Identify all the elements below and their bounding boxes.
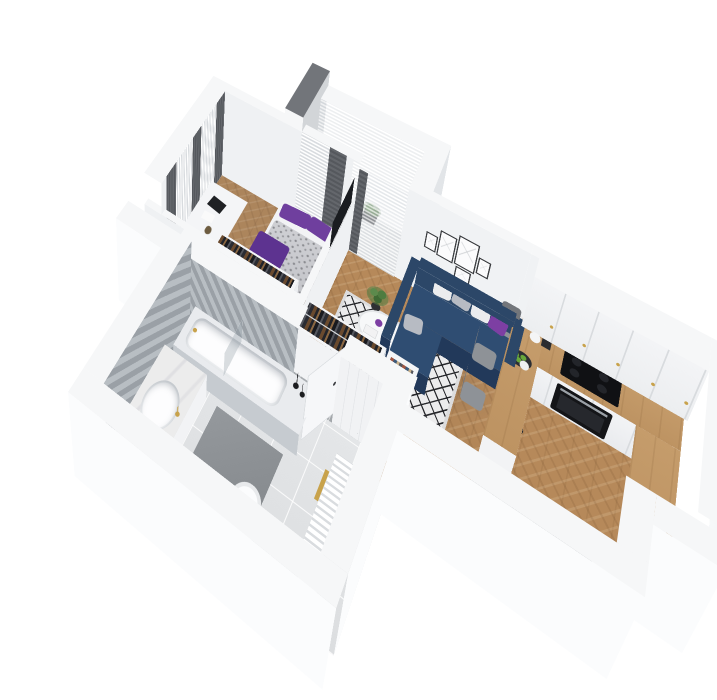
floorplan-scene bbox=[0, 0, 717, 700]
cabinet-knob[interactable] bbox=[616, 362, 621, 367]
cabinet-knob[interactable] bbox=[549, 325, 553, 330]
art-frame-small-right bbox=[475, 257, 491, 279]
cabinet-knob[interactable] bbox=[582, 343, 586, 348]
cabinet-knob[interactable] bbox=[684, 401, 689, 406]
burner bbox=[569, 367, 580, 380]
cabinet-knob[interactable] bbox=[651, 382, 656, 387]
burner bbox=[596, 382, 607, 395]
apartment-plan bbox=[12, 114, 708, 700]
